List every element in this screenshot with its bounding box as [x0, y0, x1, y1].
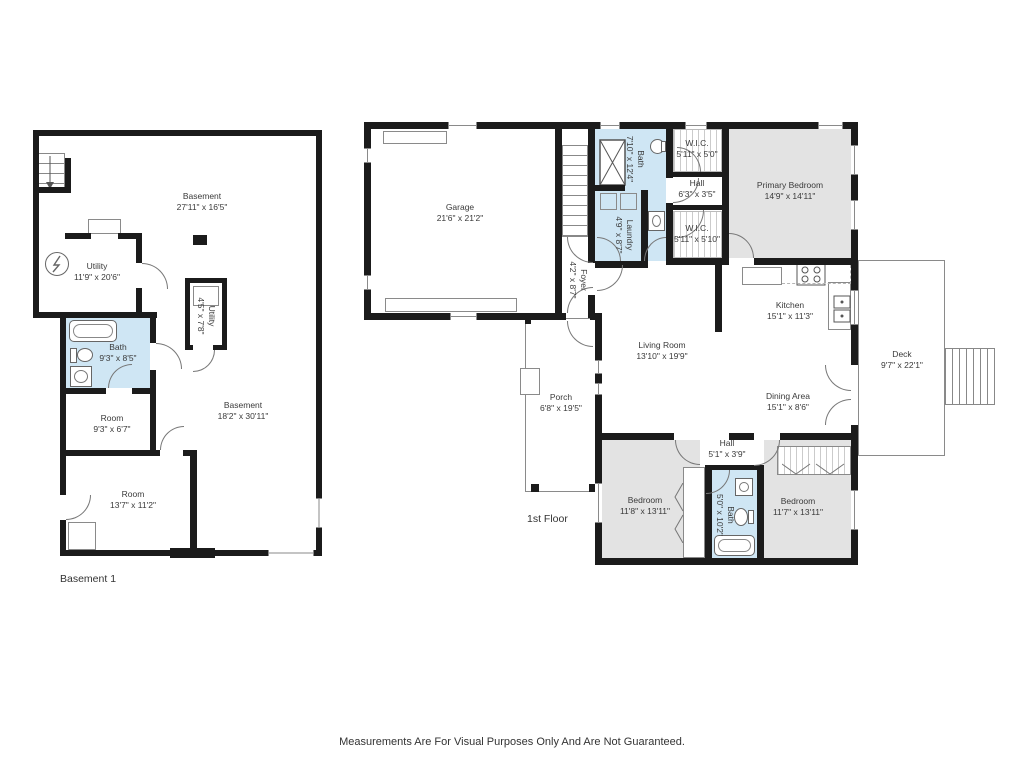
wall — [33, 130, 39, 318]
counter-edge — [782, 265, 851, 284]
floor-plan-page: Basement 27'11" x 16'5" Utility 11'9" x … — [0, 0, 1024, 768]
room-dims: 9'3" x 8'5" — [99, 353, 136, 364]
basement-plan-title: Basement 1 — [60, 573, 116, 585]
room-dims: 5'0" x 10'2" — [714, 494, 725, 536]
room-dims: 13'7" x 11'2" — [110, 500, 156, 511]
room-dims: 5'11" x 5'10" — [674, 234, 720, 245]
wall — [666, 122, 673, 178]
room-name: Deck — [881, 349, 923, 360]
wall — [673, 172, 722, 177]
window — [595, 383, 602, 395]
basement-plan: Basement 27'11" x 16'5" Utility 11'9" x … — [30, 120, 330, 570]
wall — [60, 520, 66, 556]
room-name: Bath — [99, 342, 136, 353]
wall — [150, 312, 156, 343]
bathtub-icon — [69, 320, 117, 342]
room-dims: 15'1" x 8'6" — [766, 402, 810, 413]
wall — [666, 203, 673, 265]
room-name: Foyer — [578, 261, 589, 298]
room-dims: 21'6" x 21'2" — [437, 213, 484, 224]
room-dims: 4'5" x 7'8" — [195, 297, 206, 334]
window — [851, 200, 858, 230]
room-name: Basement — [218, 400, 269, 411]
room-label-utility-closet: Utility 4'5" x 7'8" — [195, 297, 217, 334]
wall — [33, 130, 322, 136]
room-name: Room — [93, 413, 130, 424]
room-label-garage: Garage 21'6" x 21'2" — [437, 202, 484, 224]
window — [818, 122, 843, 129]
shower-icon — [599, 139, 626, 186]
room-label-dining-area: Dining Area 15'1" x 8'6" — [766, 391, 810, 413]
door-swing — [193, 350, 215, 372]
deck-stairs — [945, 348, 995, 405]
porch-screen-panel — [520, 368, 540, 395]
room-name: Primary Bedroom — [757, 180, 823, 191]
room-name: Dining Area — [766, 391, 810, 402]
wall — [595, 185, 625, 191]
door-swing — [156, 343, 182, 369]
window — [595, 483, 602, 523]
kitchen-counter — [742, 267, 782, 285]
bifold-door-icon — [782, 463, 846, 475]
sink-icon — [70, 366, 92, 387]
room-label-bath-lower: Bath 5'0" x 10'2" — [714, 494, 736, 536]
window — [448, 122, 477, 129]
room-dims: 11'7" x 13'11" — [773, 507, 823, 518]
room-label-hall-lower: Hall 5'1" x 3'9" — [708, 438, 745, 460]
door-swing — [66, 495, 91, 520]
window — [450, 313, 477, 320]
door-swing — [160, 426, 184, 450]
wall — [132, 388, 156, 394]
room-name: Kitchen — [767, 300, 813, 311]
room-name: Living Room — [636, 340, 687, 351]
room-name: Basement — [177, 191, 228, 202]
room-dims: 11'9" x 20'6" — [74, 272, 120, 283]
room-dims: 18'2" x 30'11" — [218, 411, 269, 422]
bifold-door-icon — [674, 483, 684, 543]
room-label-primary-bedroom: Primary Bedroom 14'9" x 14'11" — [757, 180, 823, 202]
dryer-icon — [620, 193, 637, 210]
room-label-bedroom-left: Bedroom 11'8" x 13'11" — [620, 495, 670, 517]
toilet-icon — [734, 508, 748, 526]
room-dims: 14'9" x 14'11" — [757, 191, 823, 202]
wall — [595, 433, 674, 440]
room-name: Room — [110, 489, 156, 500]
wall — [780, 433, 858, 440]
room-label-living-room: Living Room 13'10" x 19'9" — [636, 340, 687, 362]
room-label-room-small: Room 9'3" x 6'7" — [93, 413, 130, 435]
room-dims: 9'3" x 6'7" — [93, 424, 130, 435]
room-name: Bath — [725, 494, 736, 536]
toilet-tank-icon — [748, 510, 754, 524]
toilet-tank-icon — [70, 348, 77, 363]
vanity-sink-icon — [648, 211, 665, 231]
wall — [136, 288, 142, 318]
wall — [722, 122, 729, 265]
wall — [66, 388, 106, 394]
room-name: Porch — [540, 392, 582, 403]
porch-post — [531, 484, 539, 492]
room-label-bedroom-right: Bedroom 11'7" x 13'11" — [773, 496, 823, 518]
room-label-wic-top: W.I.C. 5'11" x 5'0" — [676, 138, 717, 160]
door-swing — [825, 365, 851, 391]
bedroom-left-closet — [683, 467, 705, 558]
wall — [715, 265, 722, 332]
window — [851, 145, 858, 175]
support-post — [193, 235, 207, 245]
room-dims: 4'9" x 8'7" — [613, 216, 624, 253]
room-label-foyer: Foyer 4'2" x 8'7" — [567, 261, 589, 298]
wall — [33, 187, 71, 193]
room-name: Laundry — [624, 216, 635, 253]
room-dims: 27'11" x 16'5" — [177, 202, 228, 213]
wall — [595, 320, 602, 433]
room-label-utility: Utility 11'9" x 20'6" — [74, 261, 120, 283]
room-dims: 11'8" x 13'11" — [620, 506, 670, 517]
room-label-deck: Deck 9'7" x 22'1" — [881, 349, 923, 371]
window — [851, 290, 858, 325]
room-name: Utility — [206, 297, 217, 334]
stairs-to-basement — [562, 145, 588, 237]
window — [268, 550, 314, 556]
first-floor-plan-title: 1st Floor — [527, 513, 568, 525]
room-label-laundry: Laundry 4'9" x 8'7" — [613, 216, 635, 253]
wall — [60, 312, 66, 495]
room-dims: 6'8" x 19'5" — [540, 403, 582, 414]
wall — [595, 558, 858, 565]
washer-icon — [600, 193, 617, 210]
room-dims: 13'10" x 19'9" — [636, 351, 687, 362]
window — [600, 122, 620, 129]
utility-equipment-nook — [88, 219, 121, 234]
room-dims: 9'7" x 22'1" — [881, 360, 923, 371]
room-dims: 6'3" x 3'5" — [678, 189, 715, 200]
room-dims: 4'2" x 8'7" — [567, 261, 578, 298]
window — [364, 148, 371, 163]
wall — [316, 130, 322, 556]
electrical-panel-icon — [44, 251, 70, 277]
measurement-disclaimer: Measurements Are For Visual Purposes Onl… — [0, 736, 1024, 748]
room-label-bath: Bath 9'3" x 8'5" — [99, 342, 136, 364]
wall — [190, 450, 197, 556]
room-closet-box — [68, 522, 96, 550]
room-label-basement-lower: Basement 18'2" x 30'11" — [218, 400, 269, 422]
room-label-wic-bottom: W.I.C. 5'11" x 5'10" — [674, 223, 720, 245]
wall — [65, 233, 91, 239]
room-name: W.I.C. — [674, 223, 720, 234]
door-swing — [142, 263, 168, 289]
garage-cabinet — [385, 298, 517, 312]
sink-icon — [735, 478, 753, 496]
room-name: Hall — [708, 438, 745, 449]
first-floor-plan: Garage 21'6" x 21'2" Bath 7'10" x 12'4" … — [364, 115, 1019, 575]
exterior-step — [170, 548, 215, 558]
room-dims: 7'10" x 12'4" — [624, 136, 635, 183]
room-dims: 5'11" x 5'0" — [676, 149, 717, 160]
room-name: Bedroom — [773, 496, 823, 507]
room-label-porch: Porch 6'8" x 19'5" — [540, 392, 582, 414]
room-label-room-large: Room 13'7" x 11'2" — [110, 489, 156, 511]
wall — [150, 370, 156, 456]
door-swing — [825, 399, 851, 425]
room-name: Utility — [74, 261, 120, 272]
room-dims: 15'1" x 11'3" — [767, 311, 813, 322]
window — [851, 490, 858, 530]
room-label-basement-upper: Basement 27'11" x 16'5" — [177, 191, 228, 213]
wall — [136, 233, 142, 263]
window — [364, 275, 371, 290]
window — [316, 498, 322, 528]
room-dims: 5'1" x 3'9" — [708, 449, 745, 460]
bathtub-icon — [714, 535, 755, 556]
door-swing — [597, 265, 623, 291]
room-name: Bedroom — [620, 495, 670, 506]
room-label-kitchen: Kitchen 15'1" x 11'3" — [767, 300, 813, 322]
room-label-hall-upper: Hall 6'3" x 3'5" — [678, 178, 715, 200]
room-label-bath-upper: Bath 7'10" x 12'4" — [624, 136, 646, 183]
room-name: Garage — [437, 202, 484, 213]
room-name: Hall — [678, 178, 715, 189]
wall — [666, 258, 729, 265]
kitchen-sink-icon — [833, 295, 851, 323]
garage-cabinet — [383, 131, 447, 144]
room-name: Bath — [635, 136, 646, 183]
wall — [757, 465, 764, 565]
stairs-down-arrow-icon — [45, 156, 55, 190]
window — [685, 122, 707, 129]
toilet-icon — [77, 348, 93, 362]
door-swing — [567, 237, 593, 263]
room-name: W.I.C. — [676, 138, 717, 149]
wall — [555, 122, 562, 313]
wall — [60, 450, 160, 456]
window — [595, 360, 602, 374]
wall — [754, 258, 858, 265]
